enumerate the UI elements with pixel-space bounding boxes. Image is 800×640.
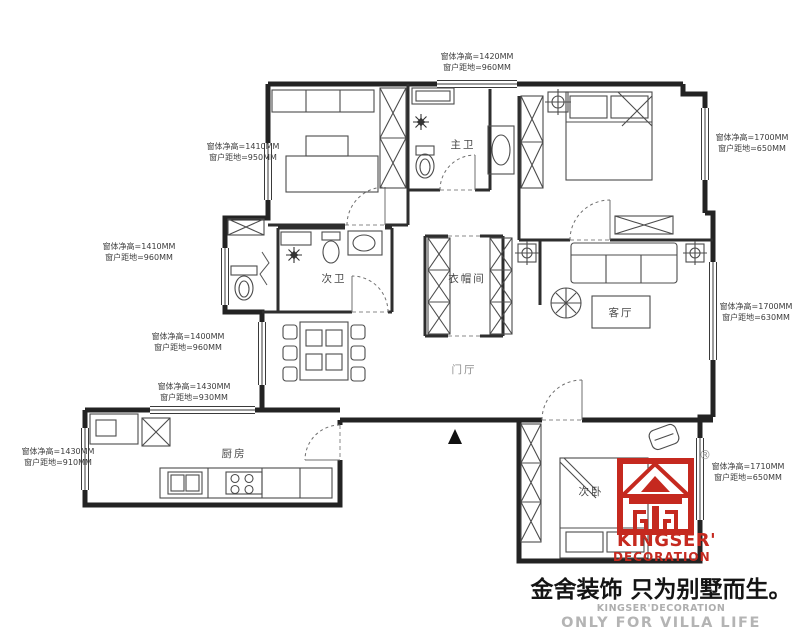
- window-annotation-left-lower: 窗体净高=1400MM 窗户距地=960MM: [128, 332, 248, 354]
- brand-slogan-english-2: ONLY FOR VILLA LIFE: [528, 615, 794, 631]
- annotation-line: 窗体净高=1700MM: [696, 302, 800, 313]
- furniture-study: [272, 88, 406, 192]
- ceiling-light-icon: [683, 241, 707, 265]
- room-label-kitchen: 厨房: [189, 446, 279, 461]
- annotation-line: 窗体净高=1710MM: [688, 462, 800, 473]
- annotation-line: 窗体净高=1700MM: [692, 133, 800, 144]
- annotation-line: 窗户距地=960MM: [417, 63, 537, 74]
- annotation-line: 窗户距地=950MM: [183, 153, 303, 164]
- window-annotation-right-middle: 窗体净高=1700MM 窗户距地=630MM: [696, 302, 800, 324]
- annotation-line: 窗体净高=1430MM: [134, 382, 254, 393]
- floor-plan-canvas: 窗体净高=1420MM 窗户距地=960MM 窗体净高=1410MM 窗户距地=…: [0, 0, 800, 640]
- annotation-line: 窗户距地=960MM: [128, 343, 248, 354]
- north-arrow-icon: [448, 429, 462, 444]
- window-annotation-top-center: 窗体净高=1420MM 窗户距地=960MM: [417, 52, 537, 74]
- annotation-line: 窗户距地=650MM: [688, 473, 800, 484]
- logo-text-decoration: DECORATION: [613, 550, 699, 564]
- furniture-cloakroom: [428, 238, 512, 334]
- window-annotation-left-top: 窗体净高=1410MM 窗户距地=950MM: [183, 142, 303, 164]
- shower-light-icon: [286, 247, 302, 263]
- annotation-line: 窗体净高=1400MM: [128, 332, 248, 343]
- room-label-living-room: 客厅: [576, 305, 666, 320]
- ceiling-light-icon: [515, 241, 539, 265]
- window-annotation-left-middle: 窗体净高=1410MM 窗户距地=960MM: [79, 242, 199, 264]
- annotation-line: 窗户距地=910MM: [0, 458, 118, 469]
- shower-light-icon: [413, 114, 429, 130]
- room-label-entry-hall: 门厅: [419, 362, 509, 377]
- ceiling-light-icon: [545, 89, 571, 115]
- room-label-master-bath: 主卫: [418, 137, 508, 152]
- annotation-line: 窗体净高=1420MM: [417, 52, 537, 63]
- annotation-line: 窗户距地=630MM: [696, 313, 800, 324]
- furniture-bedroom-top: [521, 89, 673, 234]
- window-annotation-right-bottom: 窗体净高=1710MM 窗户距地=650MM: [688, 462, 800, 484]
- annotation-line: 窗体净高=1410MM: [183, 142, 303, 153]
- annotation-line: 窗体净高=1410MM: [79, 242, 199, 253]
- annotation-line: 窗户距地=650MM: [692, 144, 800, 155]
- brand-slogan-chinese: 金舍装饰 只为别墅而生。: [528, 570, 794, 604]
- window-annotation-far-left-bottom: 窗体净高=1430MM 窗户距地=910MM: [0, 447, 118, 469]
- room-label-second-bedroom: 次卧: [546, 484, 636, 499]
- furniture-dining: [283, 322, 365, 381]
- brand-slogan-english-1: KINGSER'DECORATION: [528, 603, 794, 614]
- windows: [80, 79, 718, 520]
- registered-mark: ®: [699, 448, 711, 462]
- room-label-cloakroom: 衣帽间: [422, 271, 512, 286]
- window-annotation-left-bottom: 窗体净高=1430MM 窗户距地=930MM: [134, 382, 254, 404]
- window-annotation-right-top: 窗体净高=1700MM 窗户距地=650MM: [692, 133, 800, 155]
- armchair-icon: [647, 423, 680, 451]
- room-label-second-bath: 次卫: [289, 271, 379, 286]
- furniture-master-bath: [412, 88, 514, 178]
- furniture-small-wc: [228, 219, 264, 300]
- annotation-line: 窗户距地=930MM: [134, 393, 254, 404]
- furniture-second-bath: [281, 231, 382, 263]
- logo-text-kingser: KINGSER': [617, 530, 695, 551]
- annotation-line: 窗体净高=1430MM: [0, 447, 118, 458]
- annotation-line: 窗户距地=960MM: [79, 253, 199, 264]
